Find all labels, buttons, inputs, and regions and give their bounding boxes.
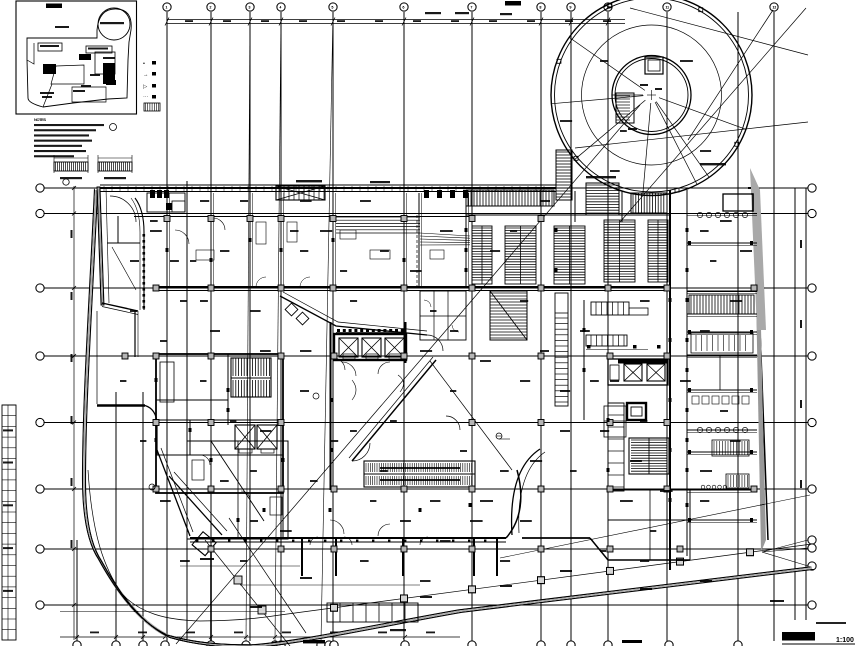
- svg-text:1:100: 1:100: [836, 637, 854, 644]
- svg-text:6: 6: [403, 6, 405, 10]
- svg-text:→: →: [143, 72, 149, 78]
- svg-text:4: 4: [280, 6, 282, 10]
- svg-text:⋯: ⋯: [143, 95, 149, 101]
- svg-text:7: 7: [471, 6, 473, 10]
- svg-text:5: 5: [332, 6, 334, 10]
- svg-text:1: 1: [166, 6, 168, 10]
- svg-text:11: 11: [666, 6, 670, 10]
- svg-text:12: 12: [773, 6, 777, 10]
- svg-text:NOTES: NOTES: [34, 117, 46, 122]
- svg-text:3: 3: [249, 6, 251, 10]
- svg-text:2: 2: [210, 6, 212, 10]
- svg-text:▷: ▷: [143, 84, 148, 90]
- svg-text:•: •: [143, 61, 145, 67]
- svg-text:9: 9: [570, 6, 572, 10]
- svg-text:8: 8: [540, 6, 542, 10]
